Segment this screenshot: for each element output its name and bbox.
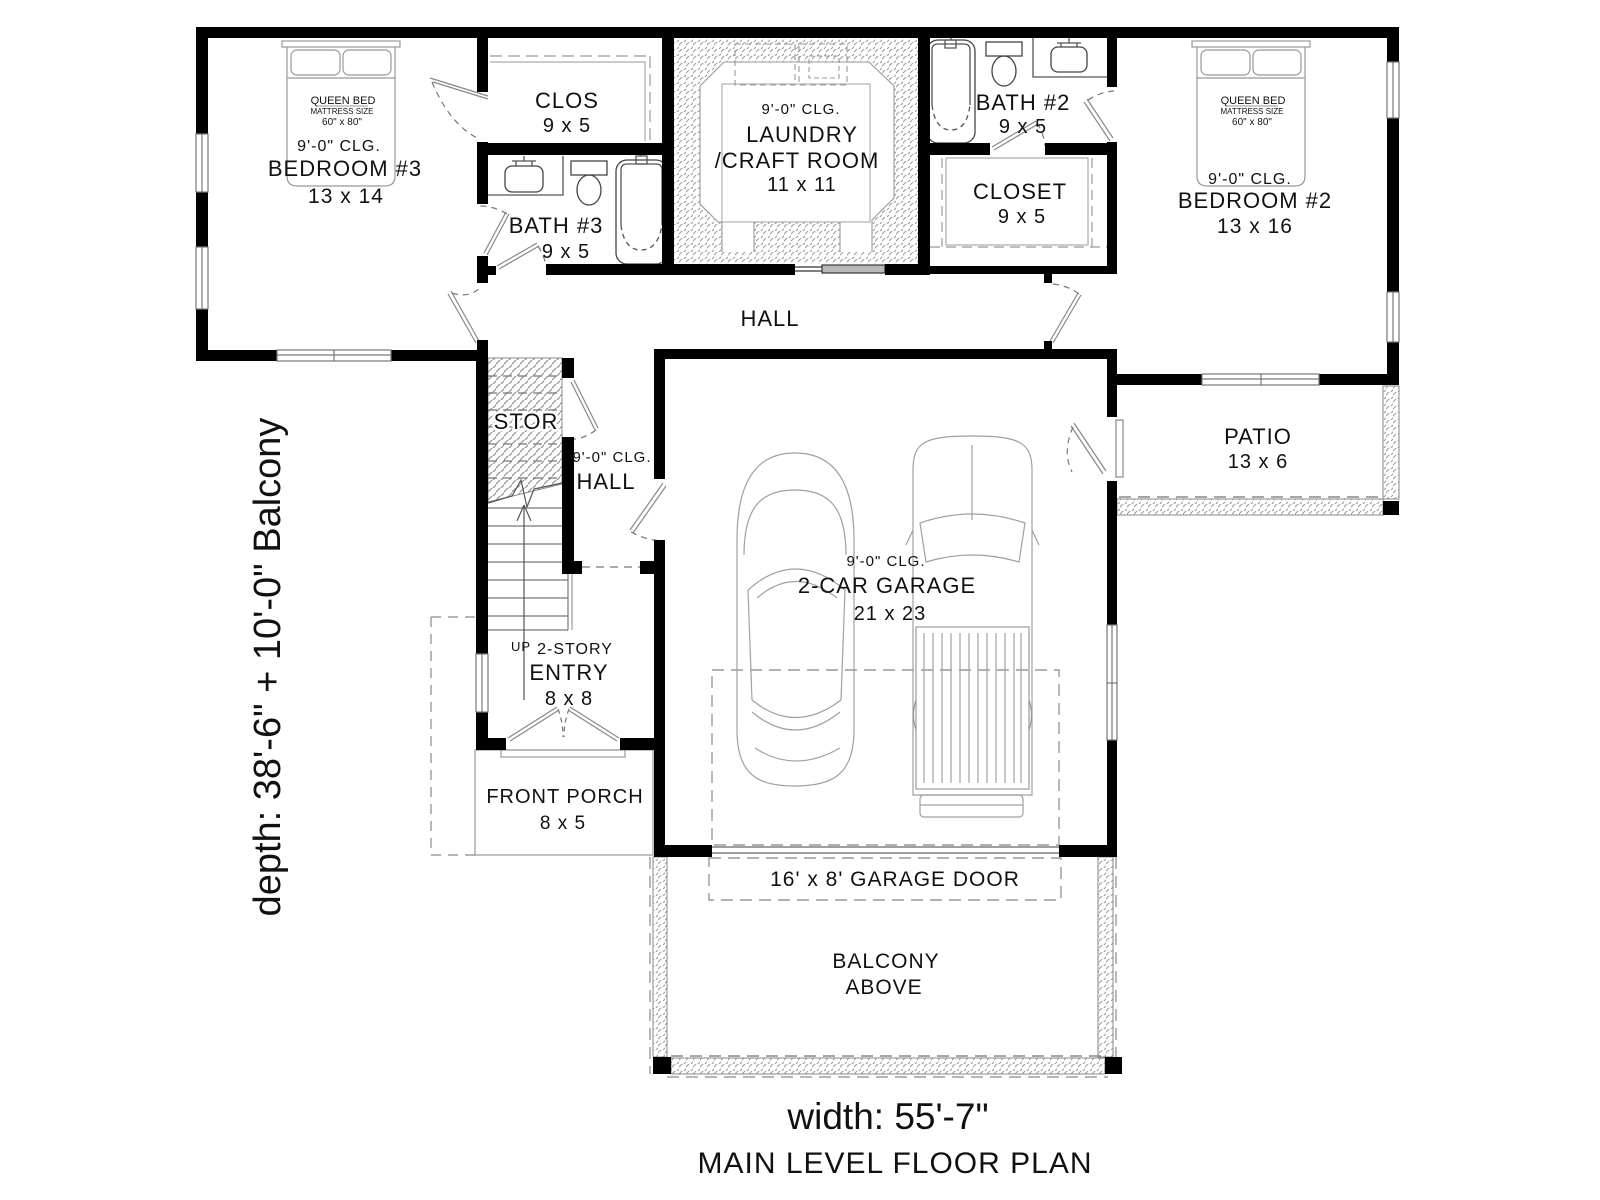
svg-text:21 x 23: 21 x 23	[854, 603, 927, 625]
svg-text:60" x 80": 60" x 80"	[322, 117, 362, 128]
svg-text:9 x 5: 9 x 5	[999, 116, 1047, 138]
svg-text:9'-0" CLG.: 9'-0" CLG.	[572, 449, 651, 466]
svg-text:STOR: STOR	[494, 409, 559, 434]
svg-text:9'-0" CLG.: 9'-0" CLG.	[761, 101, 840, 118]
svg-text:9 x 5: 9 x 5	[542, 241, 590, 263]
svg-text:9'-0" CLG.: 9'-0" CLG.	[1208, 171, 1292, 188]
svg-text:9 x 5: 9 x 5	[543, 115, 591, 137]
svg-text:width: 55'-7": width: 55'-7"	[786, 1096, 988, 1137]
svg-text:2-CAR GARAGE: 2-CAR GARAGE	[798, 573, 976, 598]
svg-text:HALL: HALL	[740, 306, 799, 331]
svg-text:HALL: HALL	[576, 469, 635, 494]
svg-text:PATIO: PATIO	[1224, 424, 1292, 449]
svg-text:MATTRESS SIZE: MATTRESS SIZE	[311, 107, 374, 116]
svg-text:LAUNDRY: LAUNDRY	[746, 122, 858, 147]
svg-text:13 x 6: 13 x 6	[1228, 451, 1288, 473]
svg-text:FRONT PORCH: FRONT PORCH	[486, 786, 643, 808]
svg-text:BEDROOM #3: BEDROOM #3	[268, 156, 422, 181]
svg-text:2-STORY: 2-STORY	[537, 641, 613, 658]
svg-text:9 x 5: 9 x 5	[998, 206, 1046, 228]
svg-text:13 x 14: 13 x 14	[308, 185, 384, 208]
svg-text:9'-0" CLG.: 9'-0" CLG.	[297, 138, 381, 155]
svg-text:QUEEN BED: QUEEN BED	[311, 95, 376, 107]
svg-text:depth: 38'-6" + 10'-0" Balcony: depth: 38'-6" + 10'-0" Balcony	[247, 418, 289, 917]
svg-text:16' x 8' GARAGE DOOR: 16' x 8' GARAGE DOOR	[770, 868, 1020, 891]
svg-text:BATH #2: BATH #2	[976, 90, 1071, 115]
svg-text:BALCONY: BALCONY	[832, 950, 939, 973]
svg-text:ENTRY: ENTRY	[529, 660, 608, 685]
svg-text:9'-0" CLG.: 9'-0" CLG.	[846, 553, 925, 570]
svg-text:BEDROOM #2: BEDROOM #2	[1178, 188, 1332, 213]
svg-text:MAIN LEVEL FLOOR PLAN: MAIN LEVEL FLOOR PLAN	[697, 1147, 1092, 1180]
svg-text:QUEEN BED: QUEEN BED	[1221, 95, 1286, 107]
svg-text:CLOS: CLOS	[535, 88, 599, 113]
svg-text:CLOSET: CLOSET	[973, 179, 1067, 204]
svg-text:UP: UP	[511, 639, 531, 654]
svg-text:60" x 80": 60" x 80"	[1232, 117, 1272, 128]
svg-text:MATTRESS SIZE: MATTRESS SIZE	[1221, 107, 1284, 116]
svg-text:/CRAFT ROOM: /CRAFT ROOM	[715, 148, 880, 173]
svg-text:BATH #3: BATH #3	[509, 213, 604, 238]
svg-text:8 x 8: 8 x 8	[545, 688, 593, 710]
svg-text:8 x 5: 8 x 5	[540, 813, 586, 834]
svg-text:ABOVE: ABOVE	[845, 976, 922, 999]
svg-text:11 x 11: 11 x 11	[767, 174, 837, 196]
svg-text:13 x 16: 13 x 16	[1217, 215, 1293, 238]
